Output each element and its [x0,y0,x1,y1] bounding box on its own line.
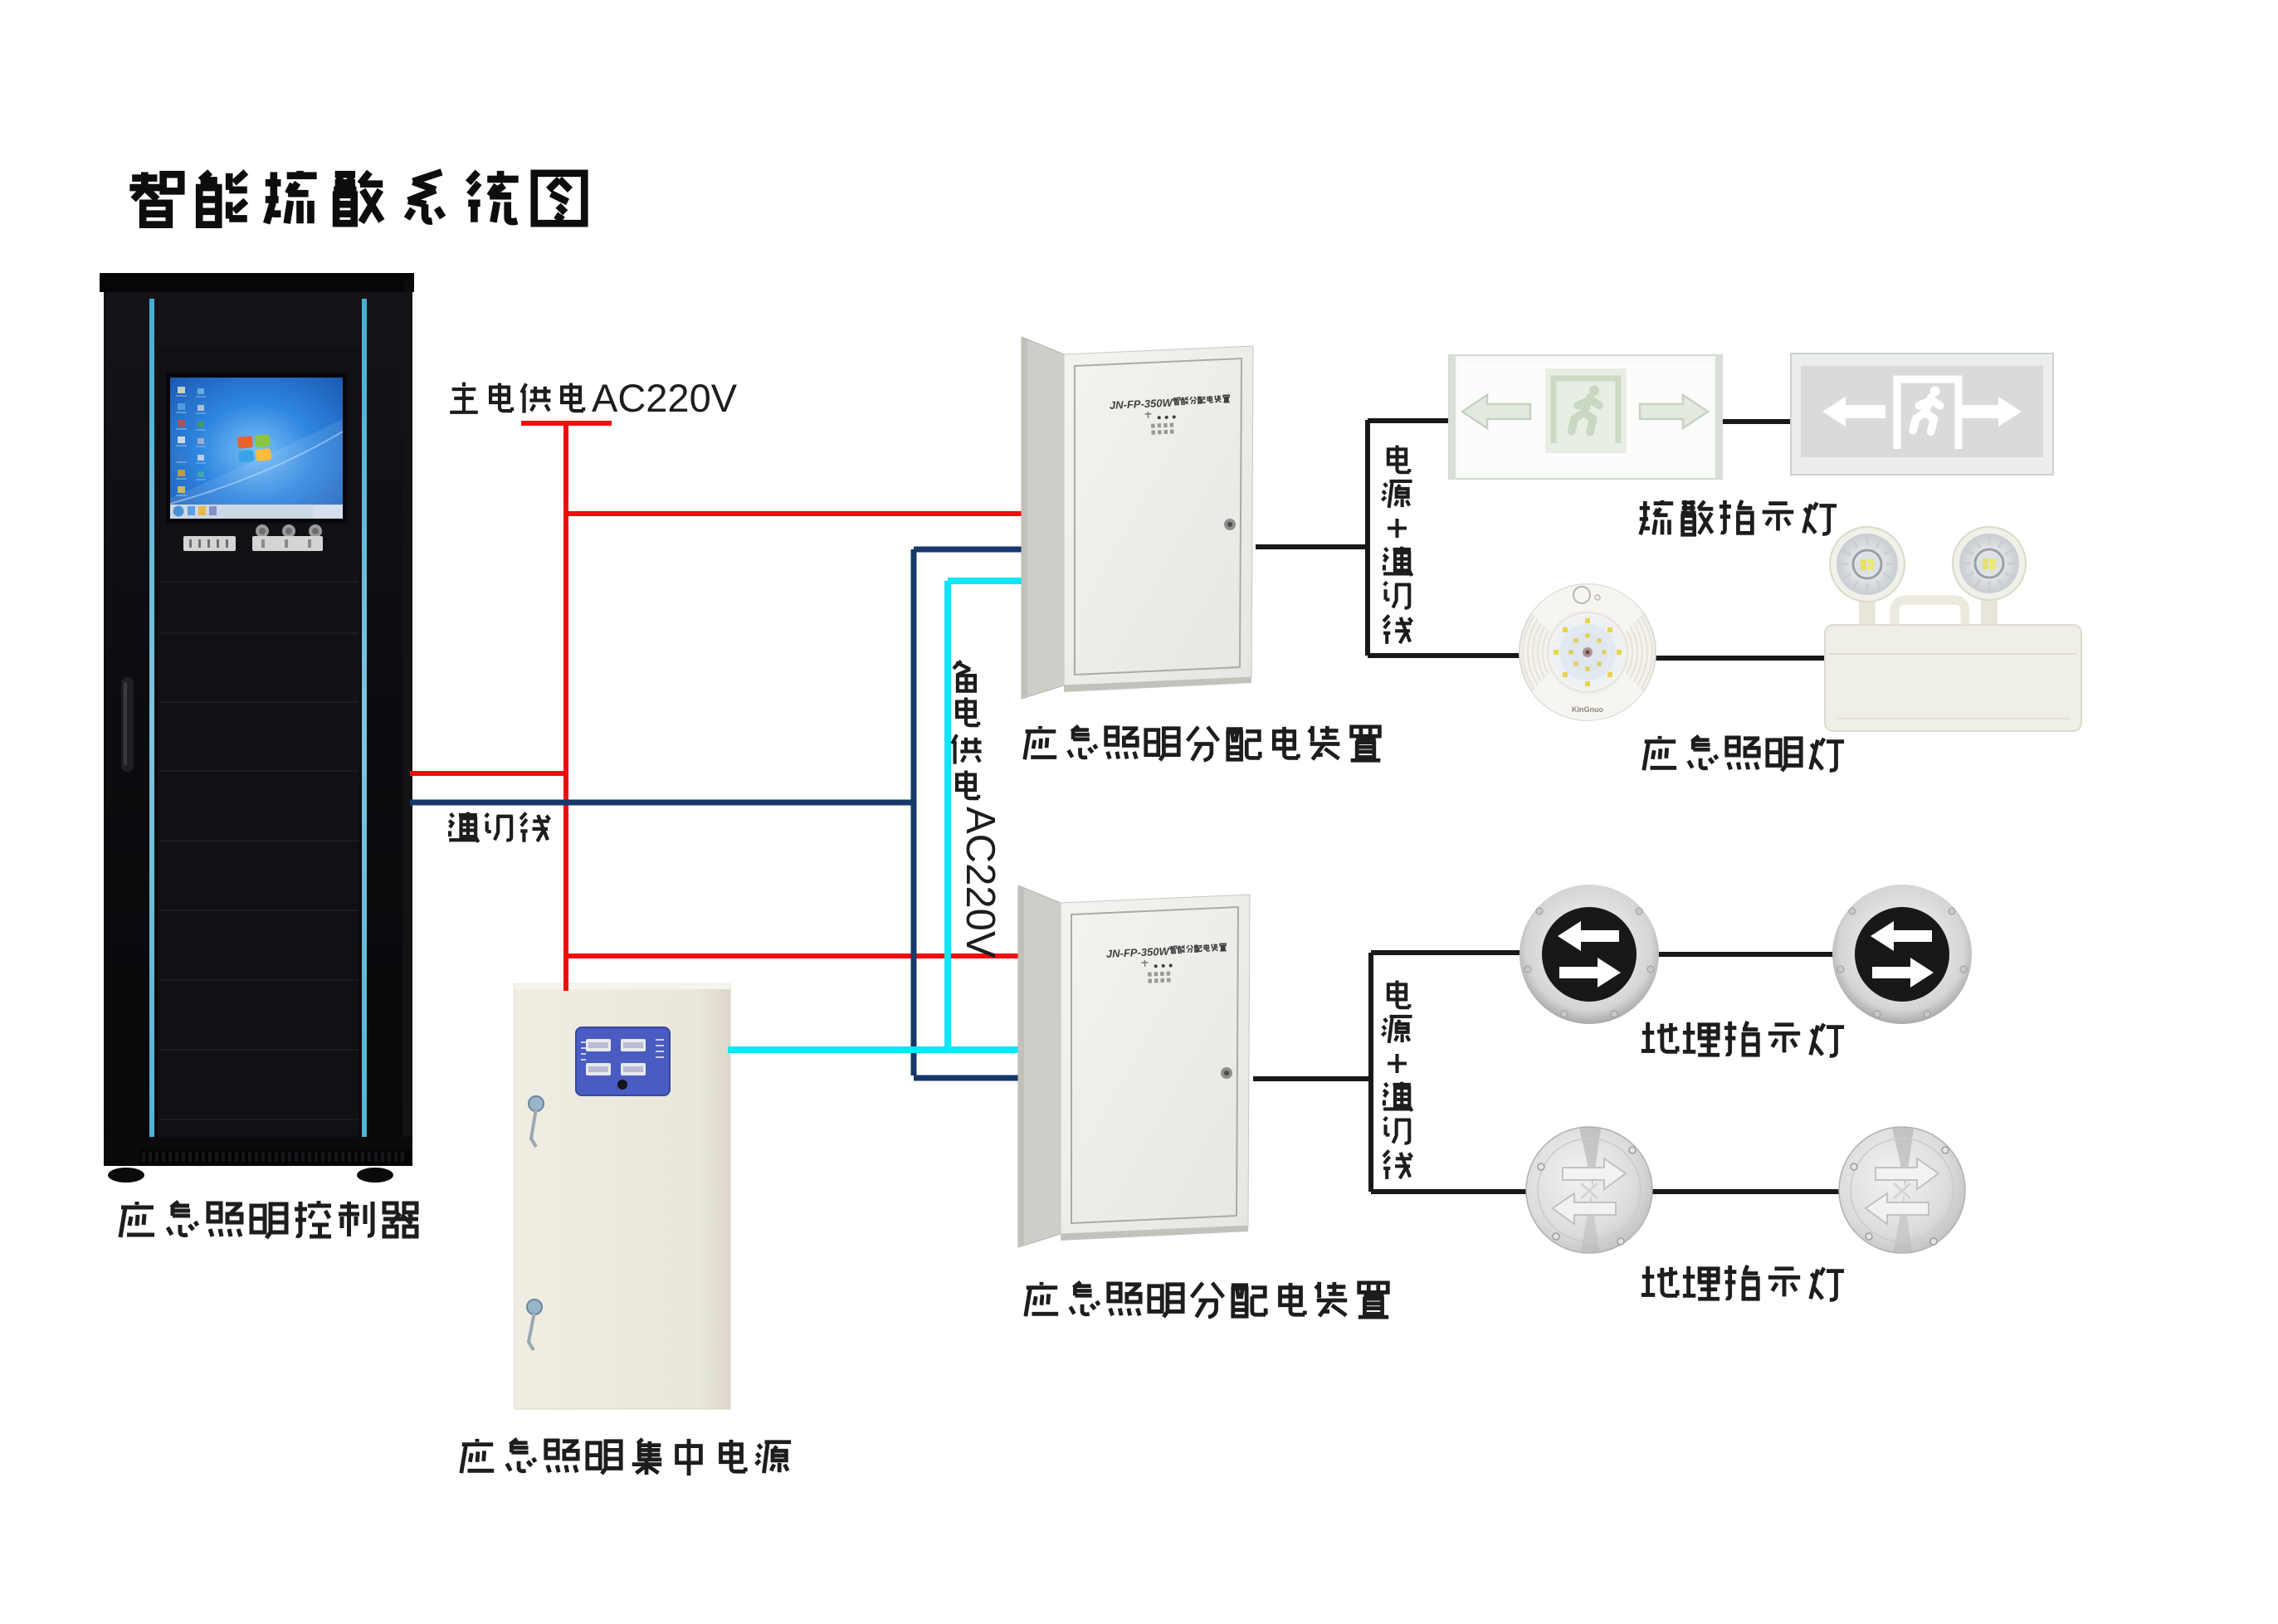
svg-text:AC220V: AC220V [958,807,1002,958]
svg-text:KinGnuo: KinGnuo [1572,705,1603,714]
svg-text:AC220V: AC220V [592,376,738,420]
